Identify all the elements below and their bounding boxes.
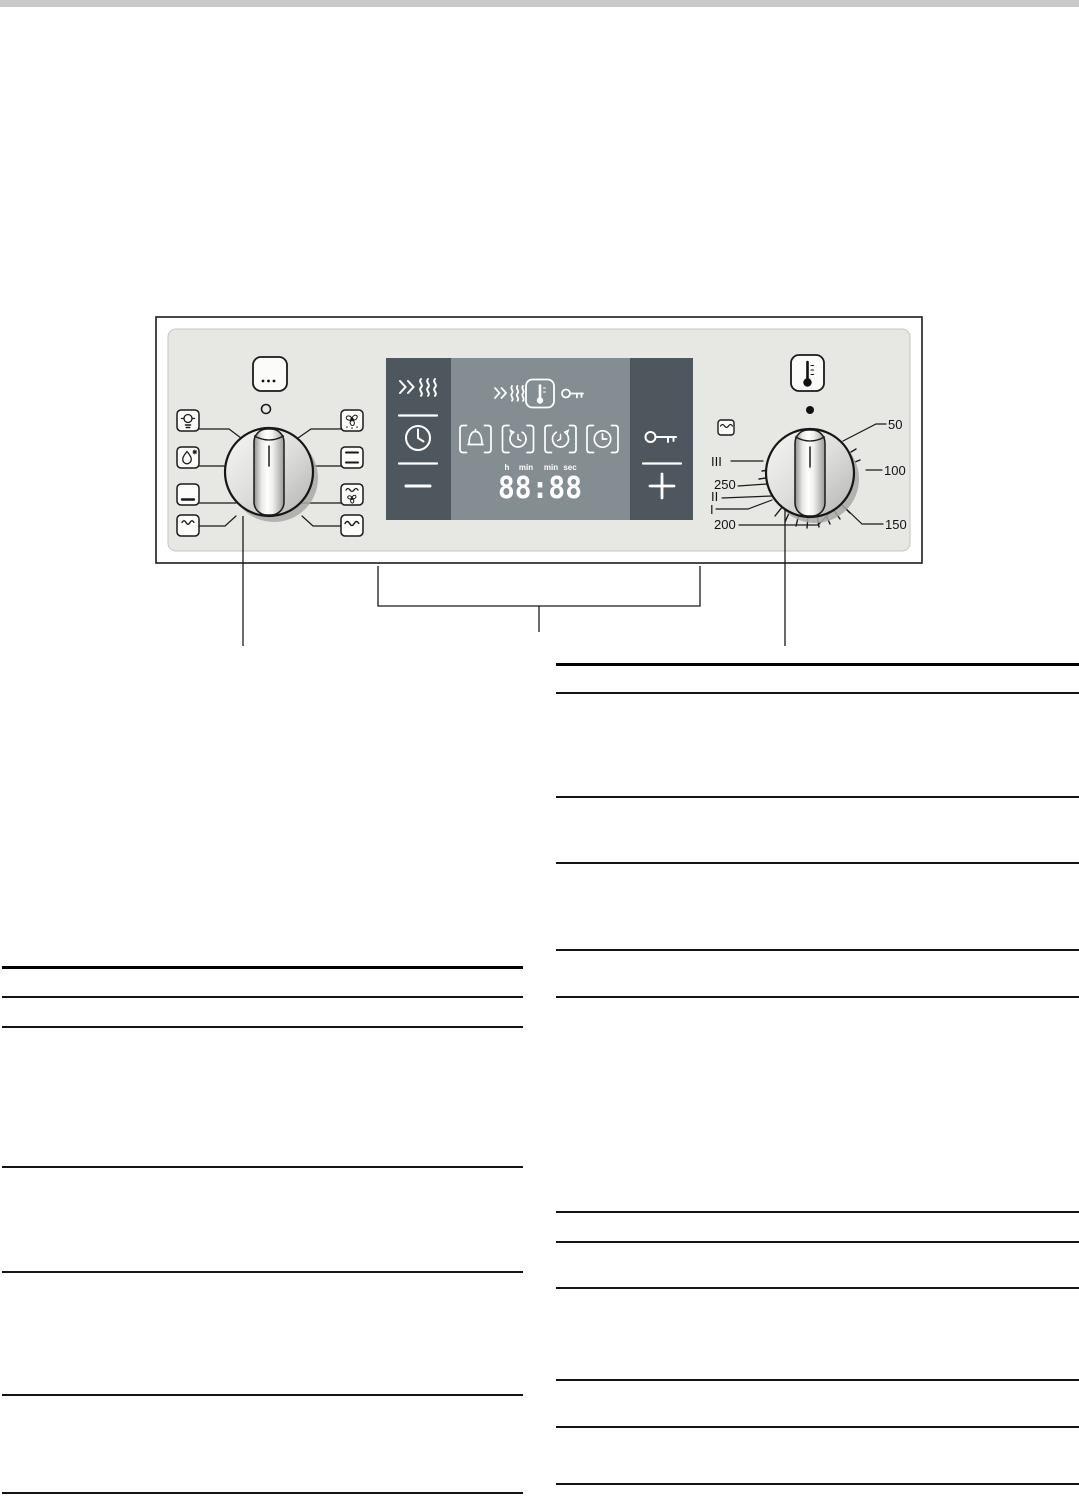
table-rule <box>556 1379 1079 1381</box>
table-rule <box>2 1394 523 1396</box>
temp-label-50: 50 <box>888 417 902 432</box>
manual-page: h min min sec 88:88 <box>0 0 1079 1500</box>
more-functions-button[interactable] <box>253 357 287 391</box>
bottom-heat-icon <box>177 484 199 505</box>
table-rule <box>2 966 523 969</box>
temp-label-100: 100 <box>884 463 906 478</box>
top-bottom-heat-icon <box>341 447 363 468</box>
temperature-position-dot <box>806 406 814 414</box>
knob-handle <box>795 430 825 516</box>
table-rule <box>556 796 1079 798</box>
grill-level-3: III <box>711 454 722 469</box>
table-rule <box>2 1492 523 1494</box>
table-rule <box>2 1166 523 1168</box>
ellipsis-icon <box>262 380 276 383</box>
grill-small-icon <box>177 515 199 536</box>
control-panel-diagram: h min min sec 88:88 <box>150 310 930 655</box>
table-rule <box>556 692 1079 694</box>
table-rule <box>556 996 1079 998</box>
defrost-icon <box>177 447 199 468</box>
table-rule <box>556 949 1079 951</box>
table-rule <box>2 1026 523 1028</box>
table-rule <box>556 862 1079 864</box>
grill-level-2: II <box>711 489 718 504</box>
table-rule <box>556 663 1079 666</box>
table-rule <box>556 1211 1079 1213</box>
table-rule <box>556 1483 1079 1485</box>
page-header-bar <box>0 0 1079 7</box>
grill-level-1: I <box>710 502 714 517</box>
time-display: 88:88 <box>498 471 582 506</box>
knob-handle <box>254 429 284 515</box>
table-rule <box>556 1241 1079 1243</box>
table-rule <box>556 1426 1079 1428</box>
table-rule <box>2 996 523 998</box>
temp-label-150: 150 <box>885 517 907 532</box>
hot-air-grill-icon <box>341 484 363 505</box>
table-rule <box>2 1271 523 1273</box>
temp-label-200: 200 <box>714 517 736 532</box>
table-rule <box>556 1287 1079 1289</box>
display: h min min sec 88:88 <box>386 358 693 520</box>
